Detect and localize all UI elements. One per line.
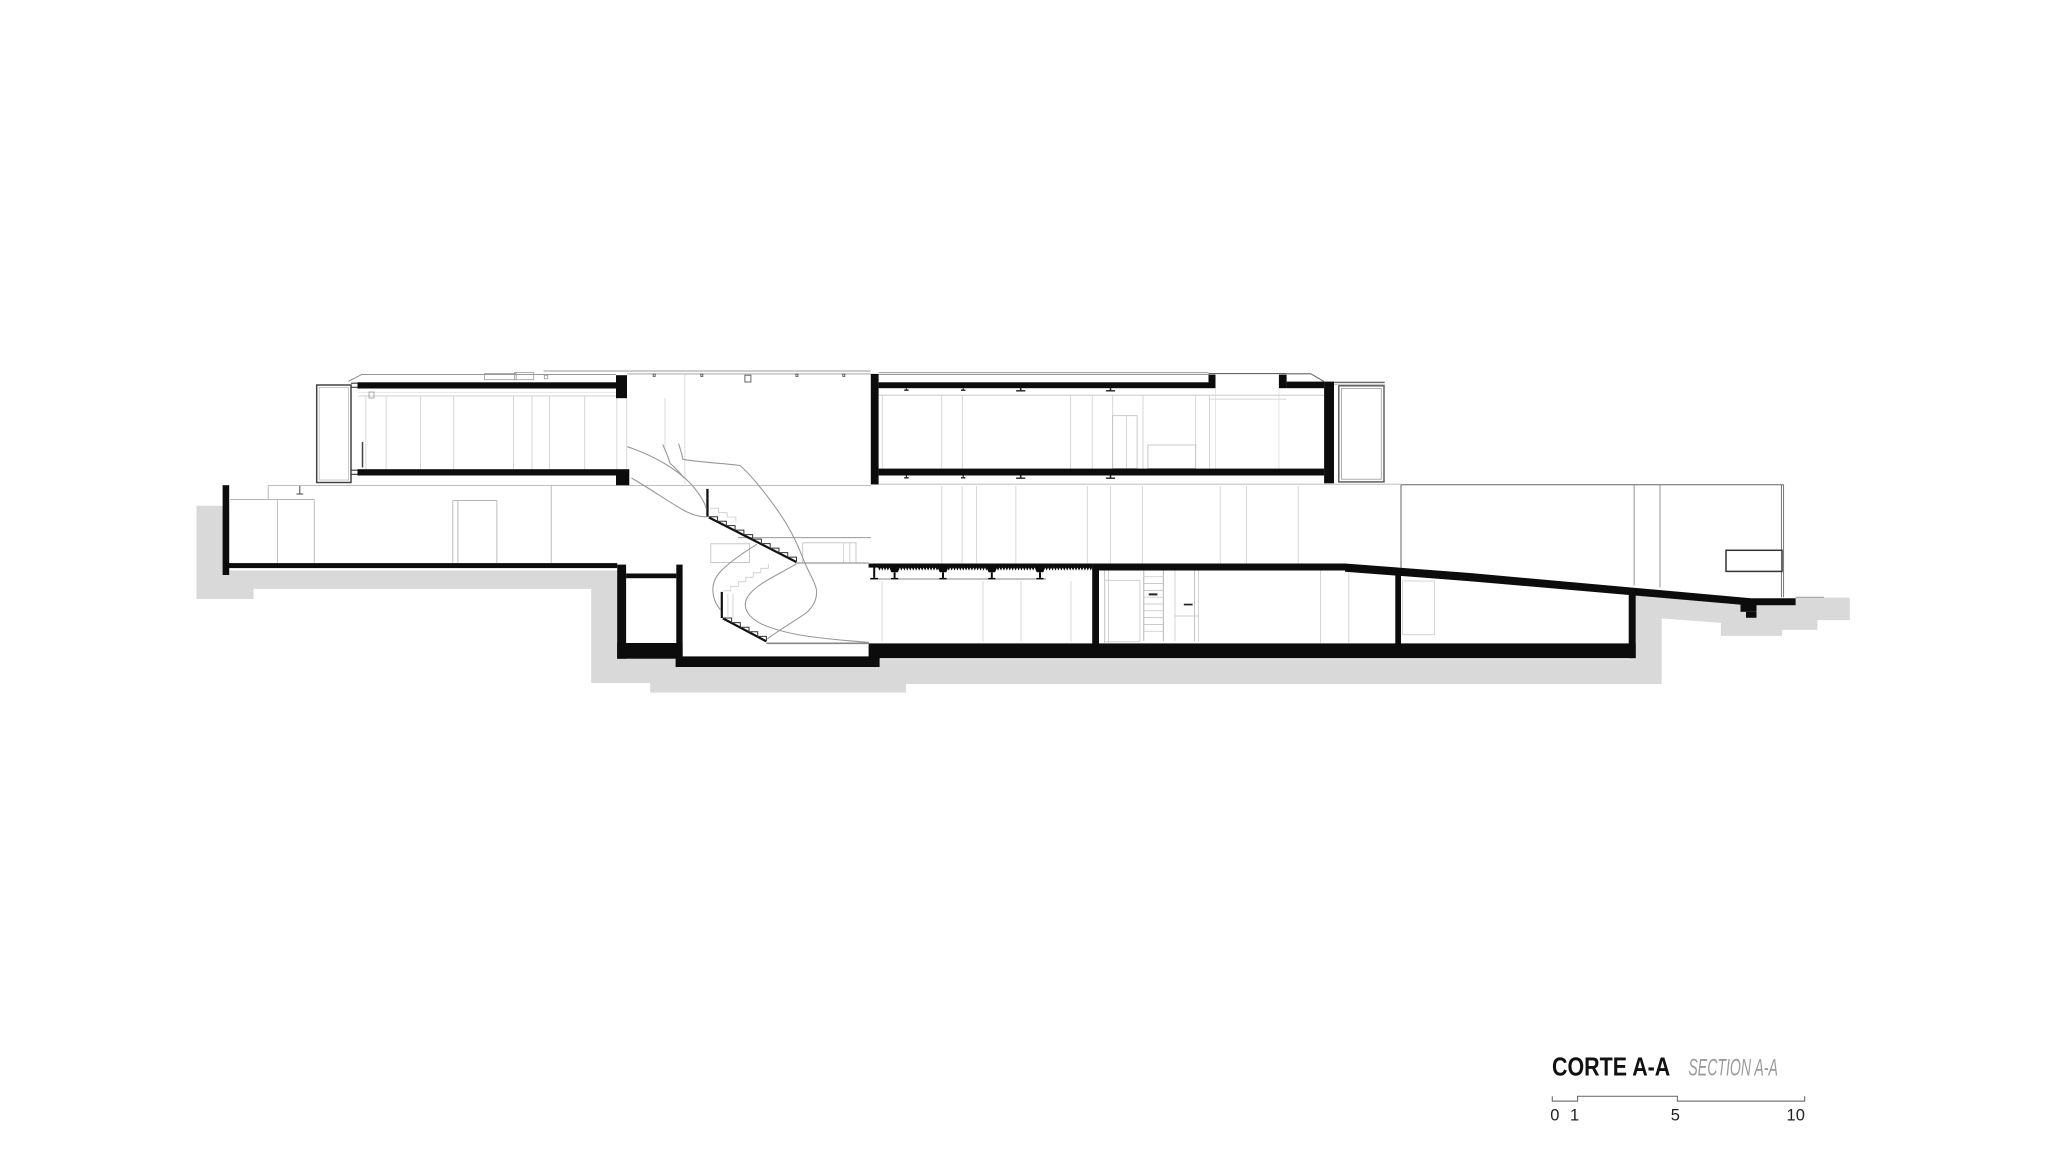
svg-text:5: 5 bbox=[1671, 1107, 1680, 1125]
svg-text:1: 1 bbox=[1570, 1107, 1579, 1125]
svg-text:10: 10 bbox=[1787, 1107, 1805, 1125]
svg-text:0: 0 bbox=[1550, 1107, 1559, 1125]
svg-text:CORTE A-A: CORTE A-A bbox=[1552, 1052, 1670, 1082]
svg-text:SECTION A-A: SECTION A-A bbox=[1688, 1055, 1778, 1082]
